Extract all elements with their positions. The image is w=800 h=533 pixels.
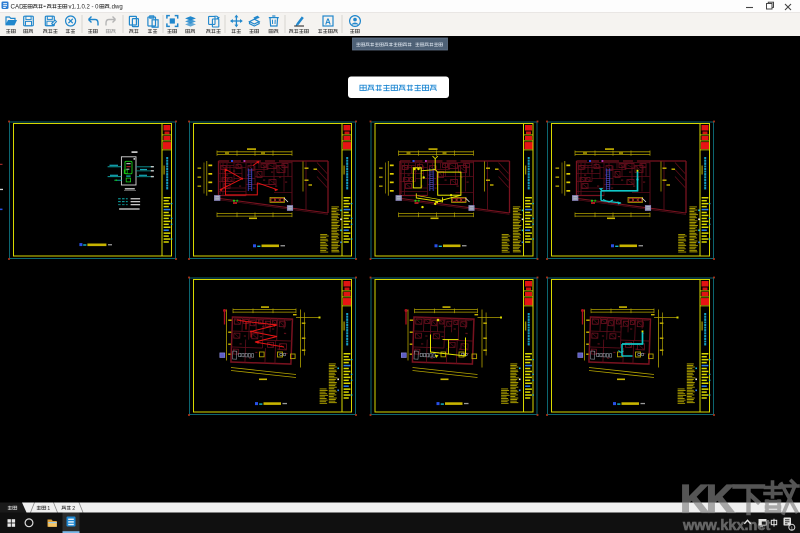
svg-text:KK: KK <box>680 478 735 522</box>
svg-text:2: 2 <box>72 506 75 512</box>
svg-text:CAD: CAD <box>11 4 25 11</box>
svg-text:www.kkx.net: www.kkx.net <box>682 518 770 533</box>
svg-text:A: A <box>325 17 331 26</box>
svg-text:v1.1.0.2 - 0: v1.1.0.2 - 0 <box>69 5 100 11</box>
svg-text:1: 1 <box>790 526 793 532</box>
svg-text:1: 1 <box>47 506 50 512</box>
svg-text:.dwg: .dwg <box>110 5 123 11</box>
